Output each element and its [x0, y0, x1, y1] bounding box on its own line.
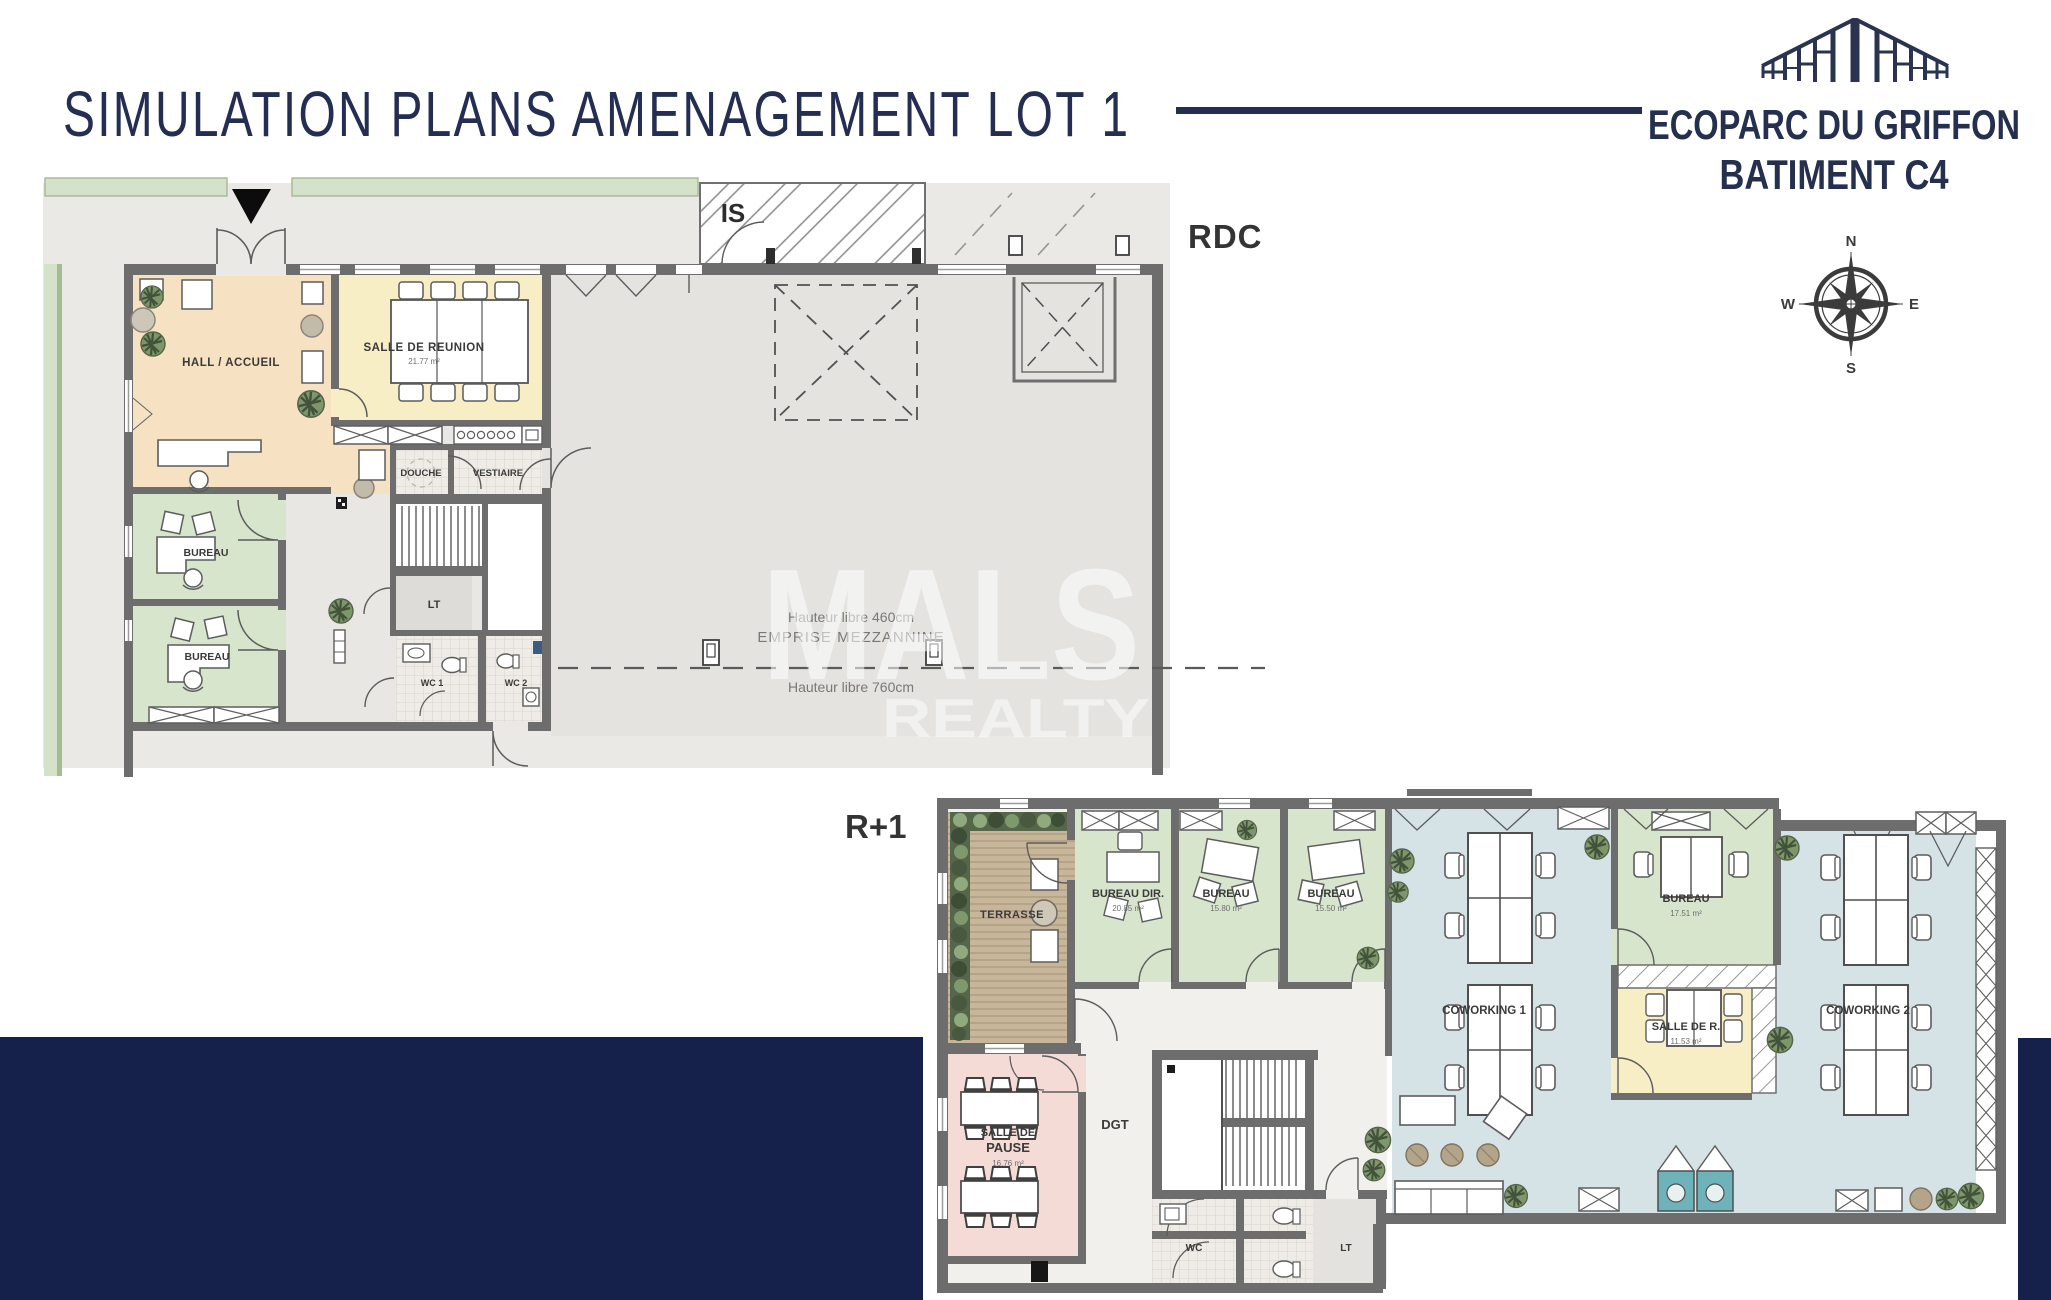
svg-text:BUREAU: BUREAU	[1662, 893, 1709, 905]
svg-text:17.51 m²: 17.51 m²	[1670, 909, 1702, 918]
svg-text:15.50 m²: 15.50 m²	[1315, 904, 1347, 913]
svg-text:BUREAU: BUREAU	[185, 651, 230, 663]
svg-text:PAUSE: PAUSE	[986, 1140, 1030, 1155]
svg-text:BUREAU: BUREAU	[1307, 888, 1354, 900]
svg-text:WC 1: WC 1	[421, 678, 444, 688]
svg-text:SALLE DE REUNION: SALLE DE REUNION	[363, 342, 484, 354]
svg-text:LT: LT	[1340, 1243, 1351, 1254]
svg-text:WC 2: WC 2	[505, 678, 528, 688]
svg-text:WC: WC	[1186, 1243, 1203, 1254]
svg-text:TERRASSE: TERRASSE	[980, 909, 1044, 921]
svg-text:IS: IS	[721, 198, 746, 228]
svg-text:BUREAU: BUREAU	[1202, 888, 1249, 900]
svg-text:15.80 m²: 15.80 m²	[1210, 904, 1242, 913]
svg-text:BUREAU DIR.: BUREAU DIR.	[1092, 888, 1164, 900]
svg-text:SALLE DE: SALLE DE	[981, 1127, 1035, 1139]
svg-text:DOUCHE: DOUCHE	[400, 468, 441, 479]
svg-text:VESTIAIRE: VESTIAIRE	[473, 468, 523, 479]
svg-text:21.77 m²: 21.77 m²	[408, 357, 440, 366]
svg-text:HALL / ACCUEIL: HALL / ACCUEIL	[182, 357, 280, 369]
svg-text:REALTY: REALTY	[882, 687, 1150, 749]
svg-text:COWORKING 1: COWORKING 1	[1442, 1005, 1526, 1017]
svg-text:BUREAU: BUREAU	[184, 547, 229, 559]
svg-text:SALLE DE R.: SALLE DE R.	[1652, 1021, 1720, 1033]
svg-text:LT: LT	[428, 599, 441, 611]
svg-text:COWORKING 2: COWORKING 2	[1826, 1005, 1910, 1017]
svg-text:20.85 m²: 20.85 m²	[1112, 904, 1144, 913]
svg-text:DGT: DGT	[1101, 1117, 1129, 1132]
svg-text:11.53 m²: 11.53 m²	[1671, 1037, 1702, 1046]
svg-text:16.76 m²: 16.76 m²	[992, 1159, 1024, 1168]
